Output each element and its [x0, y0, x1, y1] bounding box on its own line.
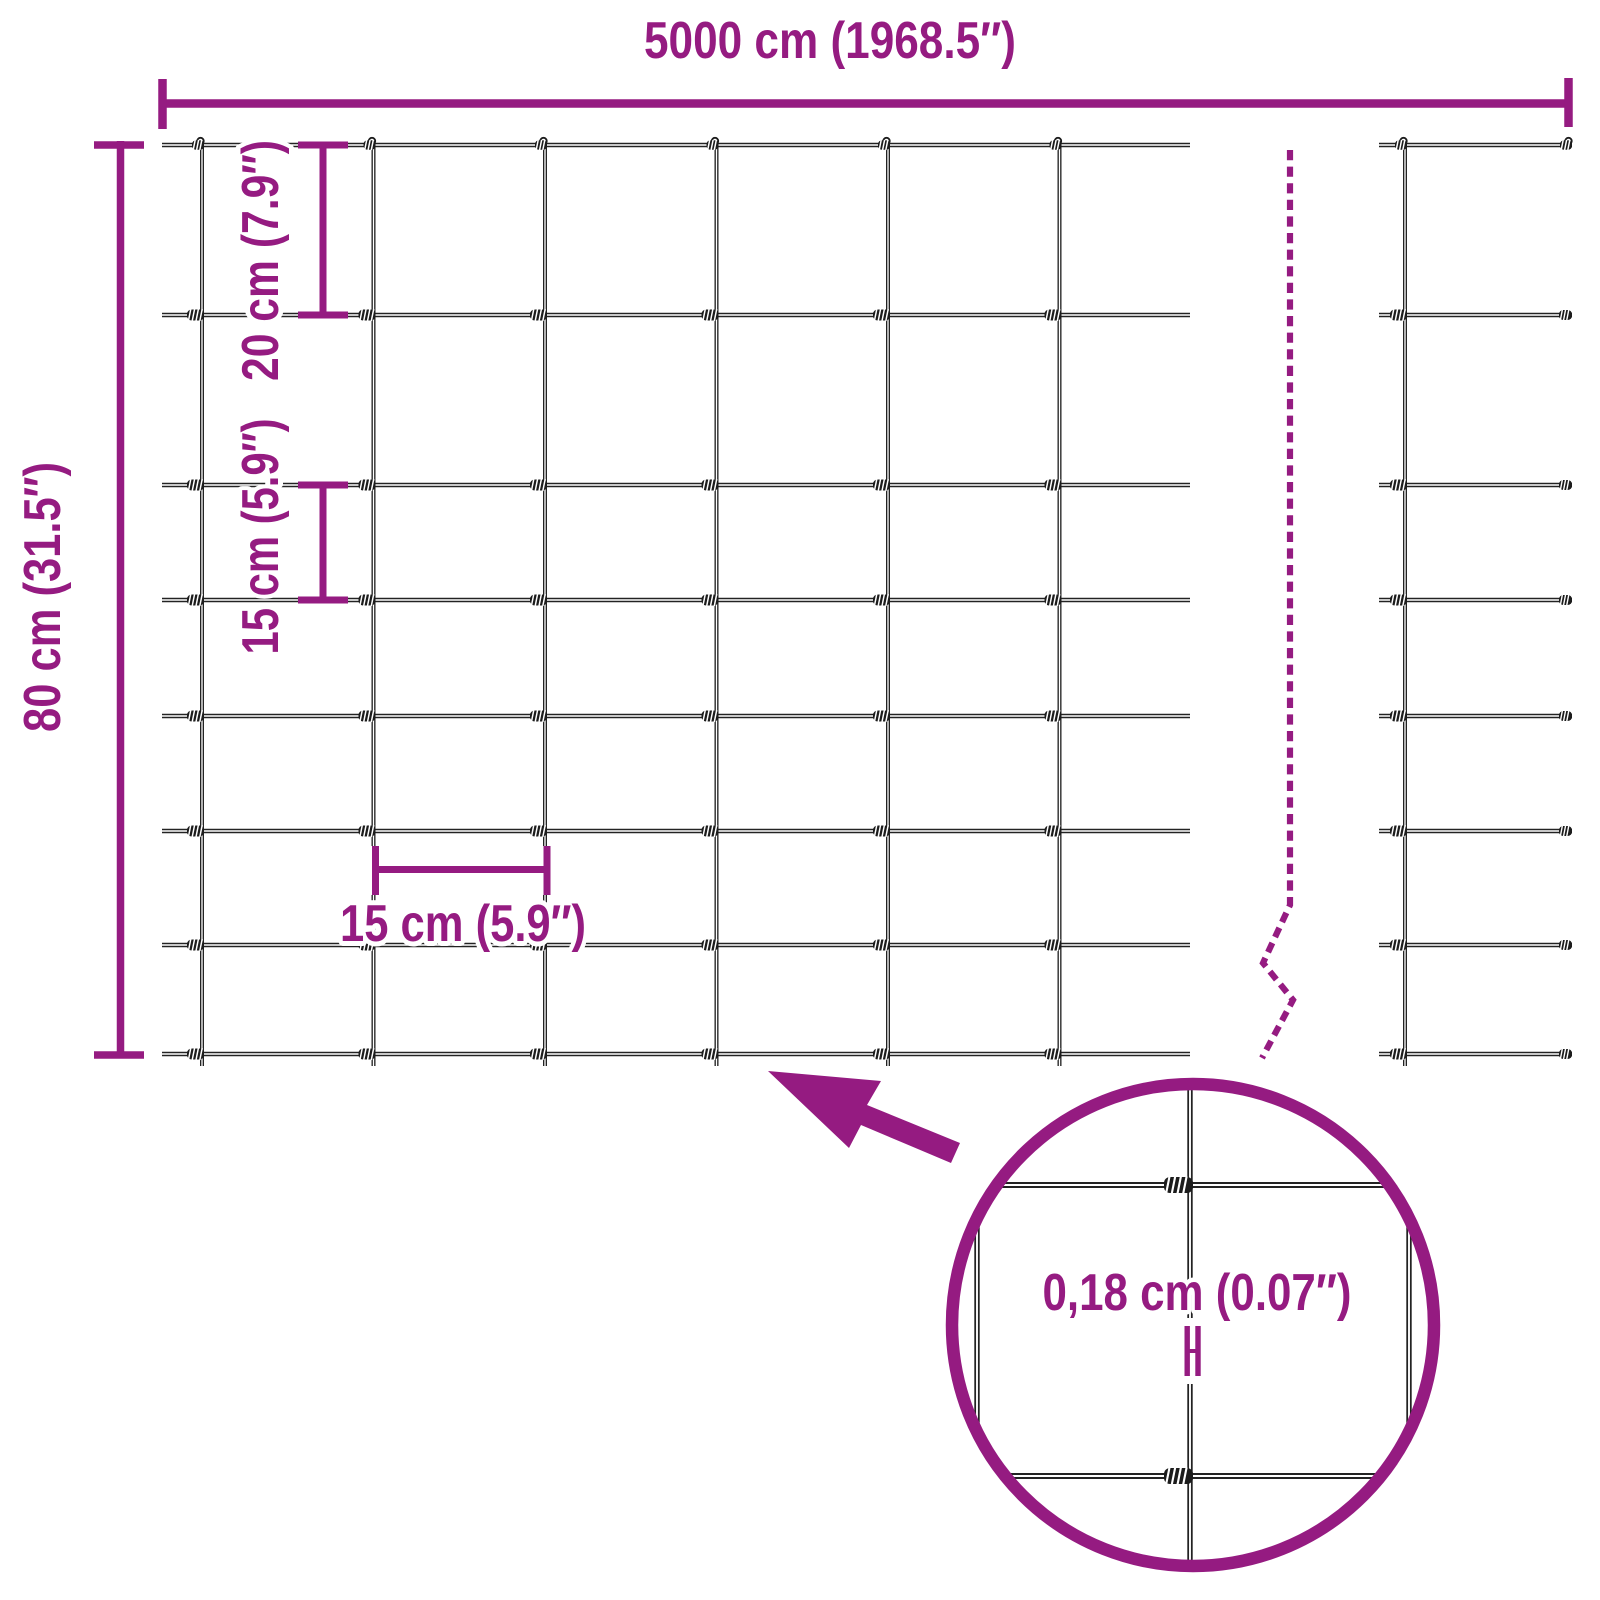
svg-text:15 cm (5.9″): 15 cm (5.9″): [232, 419, 290, 655]
svg-text:80 cm (31.5″): 80 cm (31.5″): [14, 462, 72, 732]
svg-text:20 cm (7.9″): 20 cm (7.9″): [232, 140, 290, 381]
svg-text:0,18 cm (0.07″): 0,18 cm (0.07″): [1043, 1264, 1352, 1322]
svg-text:5000 cm (1968.5″): 5000 cm (1968.5″): [644, 12, 1016, 70]
svg-text:15 cm (5.9″): 15 cm (5.9″): [340, 895, 586, 953]
